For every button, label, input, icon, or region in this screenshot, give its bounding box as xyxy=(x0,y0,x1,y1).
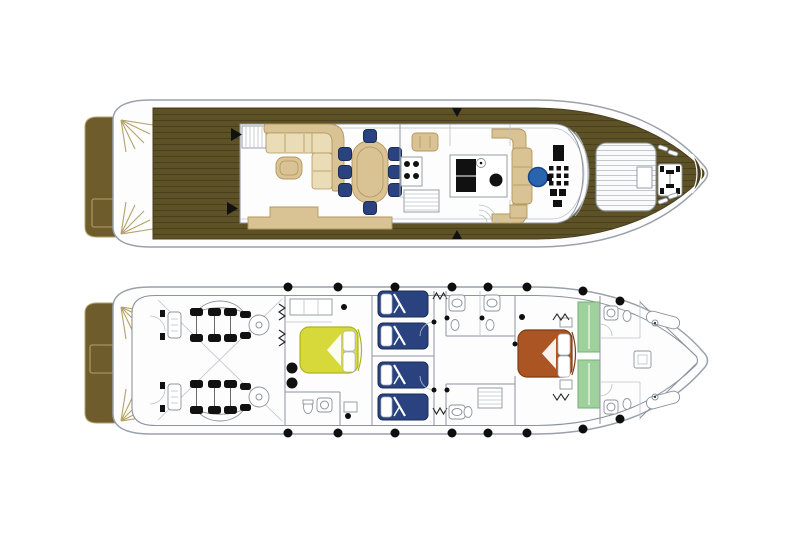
single-bed-3 xyxy=(378,362,428,388)
lower-deck-plan xyxy=(85,283,708,438)
single-bed-1 xyxy=(378,291,428,317)
yacht-deck-plans xyxy=(0,0,800,533)
galley-stairs-down xyxy=(404,190,439,212)
main-deck-plan xyxy=(85,100,708,247)
foredeck-hatch xyxy=(637,167,652,188)
anchor-windlass xyxy=(658,164,682,196)
deck-plan-drawing xyxy=(0,0,800,533)
sink xyxy=(490,174,503,187)
nightstand-2 xyxy=(560,380,572,389)
speaker-2 xyxy=(287,378,298,389)
crew-table xyxy=(412,133,438,151)
vip-double-bed xyxy=(300,327,362,373)
refrigerator xyxy=(456,159,476,192)
single-bed-4 xyxy=(378,394,428,420)
vip-bench xyxy=(344,402,357,412)
dining-table xyxy=(352,141,388,203)
companionway-stairs xyxy=(478,388,502,408)
helm-seat xyxy=(529,168,548,187)
flybridge-stairs xyxy=(242,126,266,148)
crew-table xyxy=(634,351,651,368)
stove xyxy=(401,157,422,186)
vip-wardrobe xyxy=(290,299,332,315)
wheelhouse-cabinet xyxy=(510,205,527,218)
master-double-bed xyxy=(518,330,576,377)
speaker xyxy=(287,363,298,374)
coffee-table xyxy=(276,157,302,179)
single-bed-2 xyxy=(378,323,428,349)
